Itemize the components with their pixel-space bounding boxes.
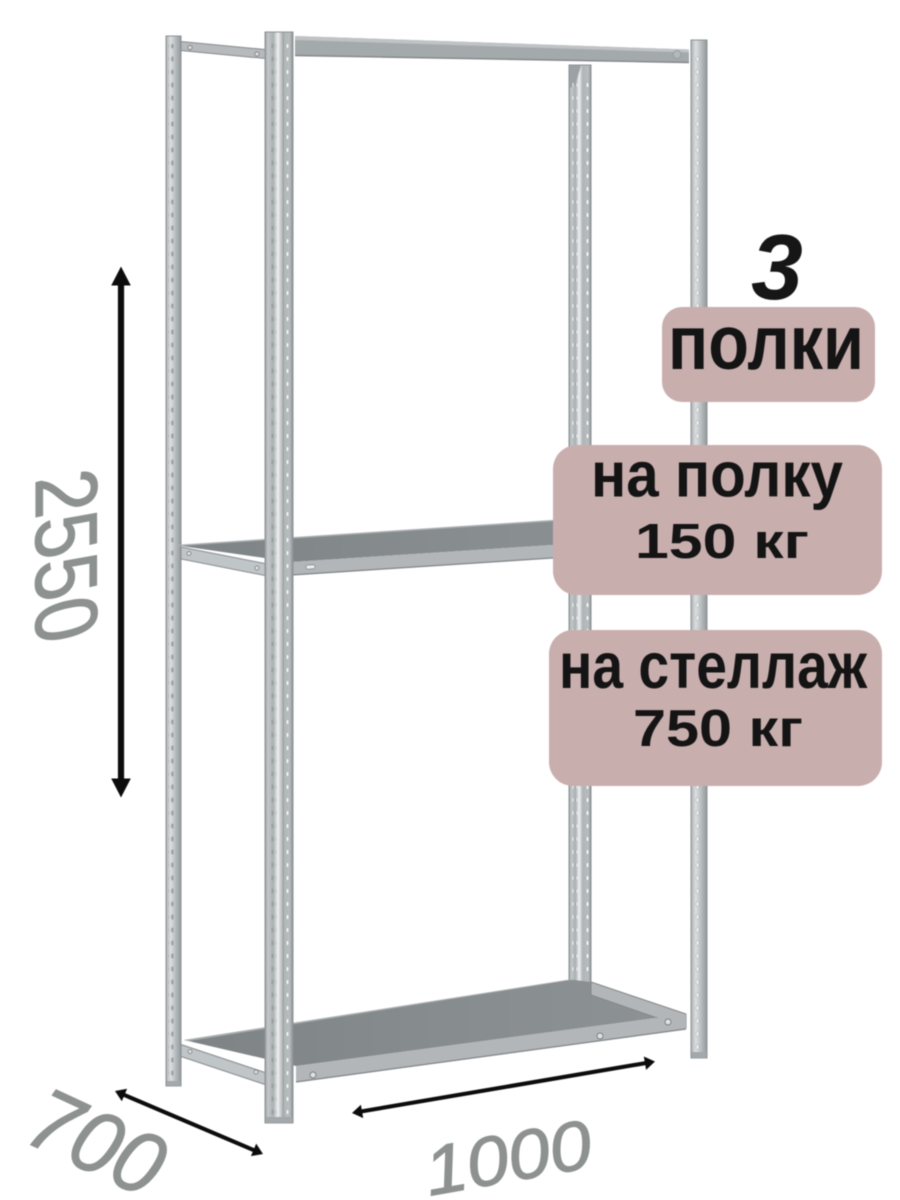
- svg-text:1000: 1000: [419, 1105, 598, 1200]
- svg-text:полки: полки: [668, 299, 864, 386]
- svg-text:2550: 2550: [17, 460, 116, 652]
- svg-text:750 кг: 750 кг: [633, 700, 803, 758]
- svg-text:на полку: на полку: [591, 438, 843, 510]
- svg-text:на стеллаж: на стеллаж: [559, 630, 868, 703]
- svg-text:700: 700: [14, 1068, 181, 1200]
- svg-text:150 кг: 150 кг: [635, 515, 809, 569]
